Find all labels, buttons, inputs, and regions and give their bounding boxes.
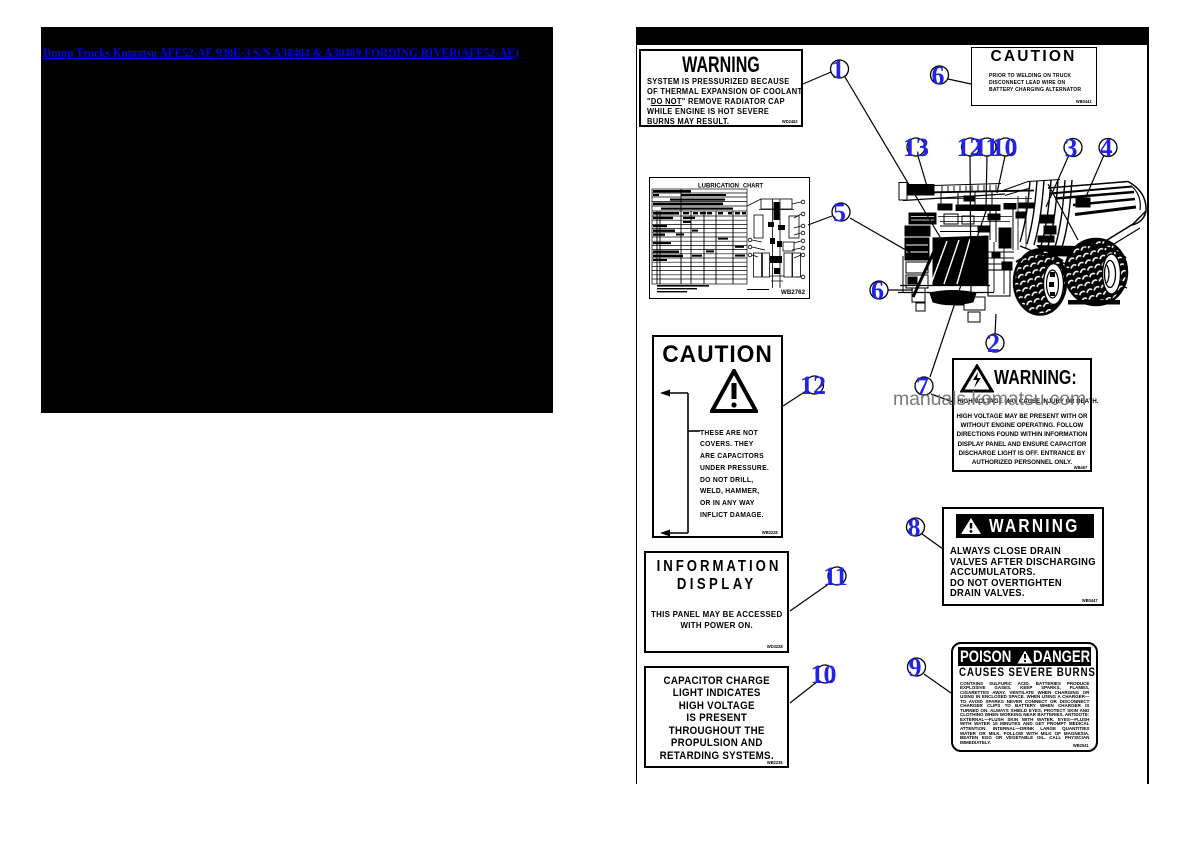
svg-text:9: 9 — [909, 653, 922, 682]
svg-text:8: 8 — [908, 513, 921, 542]
svg-text:2: 2 — [987, 329, 1000, 358]
svg-text:10: 10 — [992, 133, 1018, 162]
svg-text:6: 6 — [932, 61, 945, 90]
svg-text:10: 10 — [811, 660, 837, 689]
svg-text:5: 5 — [833, 198, 846, 227]
svg-text:11: 11 — [823, 562, 848, 591]
svg-text:1: 1 — [832, 55, 845, 84]
svg-text:4: 4 — [1100, 134, 1113, 163]
svg-text:13: 13 — [903, 133, 929, 162]
svg-text:6: 6 — [871, 276, 884, 305]
svg-text:12: 12 — [800, 371, 826, 400]
svg-text:3: 3 — [1065, 134, 1078, 163]
